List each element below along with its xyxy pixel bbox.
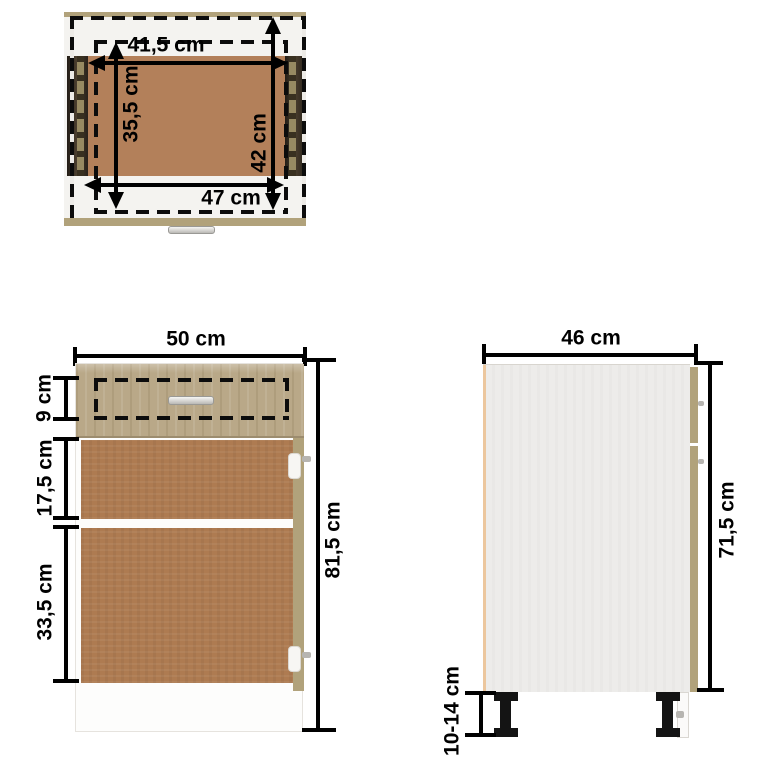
side-panel-front-edge <box>483 365 486 693</box>
dim-label-depth: 46 cm <box>561 328 621 349</box>
dim-label-leg-height: 10-14 cm <box>442 666 463 756</box>
dim-line <box>64 376 68 421</box>
hinge-bottom <box>288 646 301 672</box>
drawer-dashed-top <box>94 378 289 382</box>
door-handle-side <box>698 459 704 464</box>
inner-dashed-bottom <box>94 210 288 214</box>
drawer-dashed-left <box>94 378 98 420</box>
dim-tick <box>697 688 724 692</box>
dim-label-outer-width: 47 cm <box>201 188 261 209</box>
outer-dashed-left <box>70 16 74 218</box>
leg-flange <box>656 692 680 701</box>
leg-stem <box>662 701 673 728</box>
arrow-down-icon <box>265 193 281 210</box>
dim-label-drawer-height: 9 cm <box>34 374 55 422</box>
drawer-dashed-bottom <box>94 416 289 420</box>
front-leg <box>494 692 518 737</box>
back-leg <box>656 692 680 737</box>
cabinet-side-panel <box>483 364 690 692</box>
dim-line <box>479 691 483 737</box>
door-upper-panel <box>81 440 293 519</box>
dim-line <box>482 353 698 357</box>
drawer-slide-icon <box>289 56 296 176</box>
drawer-handle <box>168 396 214 405</box>
dim-label-lower-door: 33,5 cm <box>35 563 56 640</box>
leg-stem <box>500 701 511 728</box>
drawer-dashed-right <box>285 378 289 420</box>
dim-label-outer-depth: 42 cm <box>249 113 270 173</box>
drawer-slide-icon <box>77 56 84 176</box>
leg-foot <box>656 728 680 737</box>
door-edge-strip <box>690 446 698 692</box>
dim-line <box>316 358 320 732</box>
dim-tick <box>53 516 79 520</box>
dim-line <box>73 354 307 358</box>
hinge-top <box>288 453 301 479</box>
dim-tick <box>53 679 79 683</box>
dim-label-width: 50 cm <box>166 329 226 350</box>
arrow-down-icon <box>108 192 124 209</box>
front-view: 50 cm 9 cm 17,5 cm <box>0 260 400 767</box>
cabinet-front-body <box>75 363 303 732</box>
cabinet-dimension-diagram: 41,5 cm 35,5 cm 42 cm 47 cm 50 cm <box>0 0 767 767</box>
arrow-right-icon <box>267 177 284 193</box>
dim-label-total-height: 81,5 cm <box>323 501 344 578</box>
leg-screw <box>676 711 684 718</box>
leg-foot <box>494 728 518 737</box>
outer-dashed-right <box>302 16 306 218</box>
dim-line <box>114 56 118 194</box>
hinge-top-pin <box>302 456 311 462</box>
dim-tick <box>302 728 336 732</box>
hinge-bottom-pin <box>302 652 311 658</box>
dim-line <box>271 31 275 195</box>
dim-line <box>102 61 274 65</box>
dim-line <box>64 525 68 683</box>
door-lower-panel <box>81 528 293 683</box>
side-view: 46 cm 71,5 cm 10-14 cm <box>400 260 767 767</box>
dim-label-inner-depth: 35,5 cm <box>121 65 142 142</box>
leg-flange <box>494 692 518 701</box>
dim-tick <box>53 417 79 421</box>
top-view-front-edge <box>64 218 306 226</box>
dim-line <box>64 437 68 520</box>
drawer-edge-strip <box>690 367 698 443</box>
dim-tick <box>465 733 496 737</box>
drawer-handle-side <box>698 401 704 406</box>
top-view: 41,5 cm 35,5 cm 42 cm 47 cm <box>0 0 767 260</box>
dim-label-upper-door: 17,5 cm <box>35 439 56 516</box>
dim-label-inner-width: 41,5 cm <box>127 35 204 56</box>
drawer-handle <box>168 226 215 234</box>
dim-line <box>708 361 712 692</box>
dim-label-body-height: 71,5 cm <box>717 481 738 558</box>
